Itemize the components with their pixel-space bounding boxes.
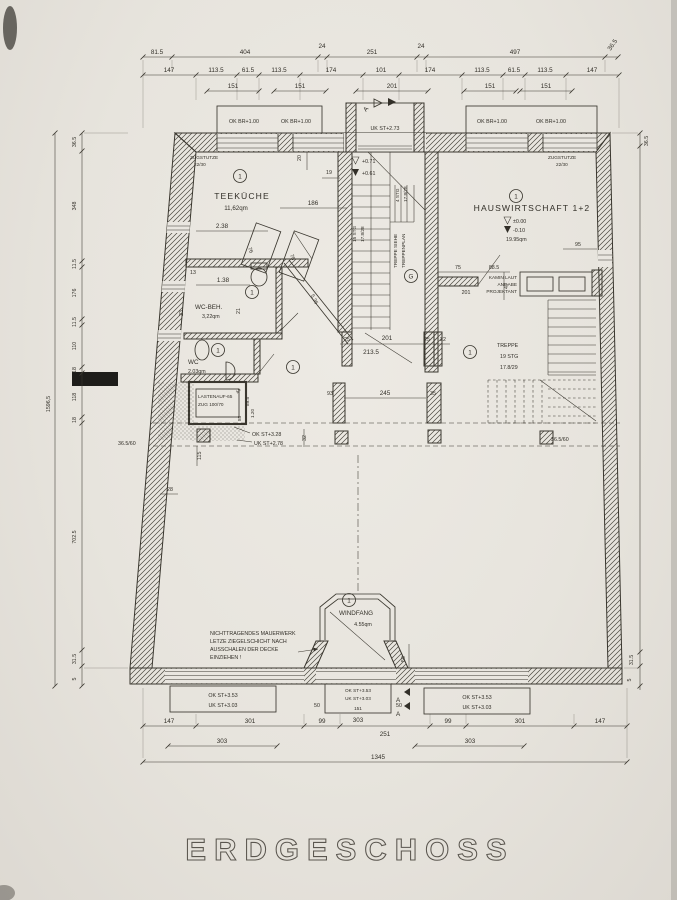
room-area-wc: 2.03qm xyxy=(188,369,206,375)
dim-label: 19 xyxy=(326,170,332,176)
flight2-rise: 17.8/28 xyxy=(403,186,408,202)
dim-label: 21 xyxy=(236,308,242,314)
room-name-teekueche: TEEKÜCHE xyxy=(214,191,270,201)
level-mark-icon xyxy=(352,169,359,176)
flight1-steps: 15 STG xyxy=(352,225,357,242)
stair-note-2: TREPPENPLAN xyxy=(401,234,406,268)
room-tag: 1 xyxy=(216,348,220,355)
column xyxy=(197,429,210,442)
stair-tag: G xyxy=(409,274,414,281)
dim-label: 186 xyxy=(308,200,319,207)
south-openings xyxy=(165,669,528,684)
room-area-teekueche: 11,62qm xyxy=(224,205,248,212)
dim-label: 28 xyxy=(167,487,173,493)
kamin: KAMIN LAUT ANGABE PROJEKTANT xyxy=(486,272,592,296)
dim-label: 174 xyxy=(425,67,436,74)
dim-label: 151 xyxy=(295,83,306,90)
scan-edge-shadow xyxy=(671,0,677,900)
wall-spec: 36.5/60 xyxy=(551,437,569,443)
dim-label: 115 xyxy=(197,452,203,460)
dim-label: 303 xyxy=(353,717,364,724)
dim-label: 95 xyxy=(575,242,581,248)
dim-label: 61.5 xyxy=(508,67,521,74)
dim-label: 151 xyxy=(541,83,552,90)
sill-label: OK BR+1.00 xyxy=(229,119,259,125)
dim-label: 303 xyxy=(217,738,228,745)
sill-boxes: OK BR+1.00 OK BR+1.00 OK BR+1.00 OK BR+1… xyxy=(217,106,597,133)
dim-label: 23 xyxy=(179,310,185,316)
room-name-hauswirtschaft: HAUSWIRTSCHAFT 1+2 xyxy=(474,203,591,213)
dim-label: 13 xyxy=(190,270,196,276)
dim-label: 147 xyxy=(595,718,606,725)
wc-south-wall xyxy=(181,374,258,382)
dim-label: 201 xyxy=(462,290,471,296)
dim-label: 1596,5 xyxy=(46,396,52,412)
interior-dimensions: 20 19 186 2.38 76 78 13 1.38 23 21 5.36 … xyxy=(160,152,597,668)
dim-label: 31.5 xyxy=(629,655,635,665)
entry-porch: UK ST+2.73 A xyxy=(344,98,426,152)
stair-hall: +0.71 +0.61 15 STG 17.8/28 4 STG 17.8/28… xyxy=(352,152,425,330)
dim-label: 85 xyxy=(237,415,242,421)
level-label: OK ST+3.53 xyxy=(462,695,491,701)
dim-label: 18 xyxy=(72,417,78,423)
exterior-walls xyxy=(130,133,622,684)
note-line: LETZE ZIEGELSCHICHT NACH xyxy=(210,639,287,645)
dim-label: 151 xyxy=(354,706,362,711)
dim-label: 702.5 xyxy=(72,530,78,543)
dim-label: 11.5 xyxy=(72,259,78,269)
room-name-wcbeh: WC-BEH. xyxy=(195,304,223,311)
room-name-wc: WC xyxy=(188,359,199,366)
dim-label: 35 xyxy=(430,391,436,397)
dim-label: 36.5 xyxy=(644,136,650,146)
hall-level-lower: +0.61 xyxy=(362,171,375,177)
dim-label: 36.5 xyxy=(606,38,619,52)
level-label: UK ST+3.03 xyxy=(345,696,371,701)
room-area-hauswirtschaft: 19.95qm xyxy=(506,237,527,243)
scan-smudge xyxy=(0,885,15,900)
dim-label: 99 xyxy=(318,718,326,725)
floorplan-svg: OK BR+1.00 OK BR+1.00 OK BR+1.00 OK BR+1… xyxy=(0,0,677,900)
zugstuetze-note: 22/30 xyxy=(194,162,206,167)
column xyxy=(428,430,441,443)
zugstuetze-note: ZUGSTUTZE xyxy=(548,155,576,160)
column xyxy=(335,431,348,444)
level-label: UK ST+3.03 xyxy=(208,703,237,709)
dim-label: 303 xyxy=(465,738,476,745)
note-line: NICHTTRAGENDES MAUERWERK xyxy=(210,631,296,637)
dim-label: 32 xyxy=(302,435,308,441)
dim-label: 18 xyxy=(72,367,78,373)
wcbeh-south-wall xyxy=(184,333,282,339)
dim-label: 93 xyxy=(327,391,333,397)
dim-label: 1.20 xyxy=(250,408,255,418)
top-dimensions: 81.5 404 24 251 24 497 36.5 147 113.5 61… xyxy=(141,38,622,128)
dim-label: 118 xyxy=(72,393,78,401)
dim-label: 11.5 xyxy=(72,317,78,327)
stair-edges xyxy=(371,152,390,330)
dim-label: 101 xyxy=(376,67,387,74)
section-letter: A xyxy=(396,711,401,718)
dim-label: 5 xyxy=(627,678,633,681)
dim-label: 113.5 xyxy=(537,67,553,74)
dim-label: 301 xyxy=(515,718,526,725)
room-tag: 1 xyxy=(250,290,254,297)
room-tag: 1 xyxy=(347,598,351,605)
dim-label: 251 xyxy=(367,49,378,56)
dim-label: 201 xyxy=(382,335,393,342)
scanned-floor-plan-page: OK BR+1.00 OK BR+1.00 OK BR+1.00 OK BR+1… xyxy=(0,0,677,900)
dim-label: 99 xyxy=(444,718,452,725)
dim-label: 1.38 xyxy=(217,277,230,284)
dim-label: 176 xyxy=(72,289,78,298)
elevator-label-1: LASTENAUF-65 xyxy=(198,394,233,399)
room-tag: 1 xyxy=(514,194,518,201)
room-area-wcbeh: 3,22qm xyxy=(202,314,220,320)
sill-label: OK BR+1.00 xyxy=(536,119,566,125)
dim-label: 88.5 xyxy=(489,265,499,271)
zugstuetze-note: 22/30 xyxy=(556,162,568,167)
dim-label: 89.5 xyxy=(245,396,250,406)
section-arrow-icon xyxy=(404,702,410,710)
wc-east-wall xyxy=(254,339,260,374)
note-line: AUSSCHALEN DER DECKE xyxy=(210,647,279,653)
dim-label: 1345 xyxy=(371,754,386,761)
right-stair-label-3: 17.8/29 xyxy=(500,365,518,371)
right-stair-label-1: TREPPE xyxy=(497,343,519,349)
dim-label: 36.5 xyxy=(72,137,78,147)
zugstuetze-note: ZUGSTUTZE xyxy=(190,155,218,160)
level-label: UK ST+3.03 xyxy=(462,705,491,711)
entry-level-label: UK ST+2.73 xyxy=(370,126,399,132)
dim-label: 5 xyxy=(72,677,78,680)
kamin-note-3: PROJEKTANT xyxy=(486,289,517,294)
mid-level-uk: UK ST+2.78 xyxy=(254,441,283,447)
wall-spec: 36.5/60 xyxy=(118,441,136,447)
dim-label: 50 xyxy=(401,656,407,662)
dim-label: 151 xyxy=(228,83,239,90)
stair-note-1: TREPPE SIEHE xyxy=(393,234,398,268)
mauerwerk-note: NICHTTRAGENDES MAUERWERK LETZE ZIEGELSCH… xyxy=(210,631,318,661)
toilet-icon xyxy=(195,340,209,360)
level-mark-icon xyxy=(504,217,511,224)
sill-label: OK BR+1.00 xyxy=(281,119,311,125)
right-stair-label-2: 19 STG xyxy=(500,354,518,360)
dim-label: 245 xyxy=(380,390,391,397)
dim-label: 113.5 xyxy=(474,67,490,74)
dim-label: 24 xyxy=(417,43,425,50)
dim-label: 213.5 xyxy=(363,349,379,356)
wcbeh-east-wall xyxy=(276,267,282,333)
bottom-dimensions: OK ST+3.53 UK ST+3.03 OK ST+3.53 UK ST+3… xyxy=(141,684,630,765)
wall-reference-marker xyxy=(72,372,118,386)
level-mark-icon xyxy=(504,226,511,233)
upper-flight-treads xyxy=(390,185,414,222)
dim-label: 20 xyxy=(297,155,303,161)
scan-smudge xyxy=(3,6,17,50)
dim-label: 75 xyxy=(455,265,461,271)
dim-label: 61.5 xyxy=(242,67,255,74)
stipple-zone xyxy=(158,382,194,440)
dim-label: 251 xyxy=(380,731,391,738)
room-name-windfang: WINDFANG xyxy=(339,610,373,617)
hall-level-upper: +0.71 xyxy=(362,159,375,165)
sill-label: OK BR+1.00 xyxy=(477,119,507,125)
dim-label: 76 xyxy=(246,247,254,255)
dim-label: 25 xyxy=(424,337,430,343)
section-letter: A xyxy=(362,105,371,113)
room-tag: 1 xyxy=(291,365,295,372)
room-tag: 1 xyxy=(238,174,242,181)
left-dimensions: 36.5 348 11.5 176 11.5 110 18 118 18 702… xyxy=(46,131,128,689)
dim-label: 497 xyxy=(510,49,521,56)
dim-label: 151 xyxy=(485,83,496,90)
kamin-note-1: KAMIN LAUT xyxy=(489,275,517,280)
east-wall xyxy=(596,133,622,668)
flight1-rise: 17.8/28 xyxy=(360,226,365,242)
dim-label: 404 xyxy=(240,49,251,56)
hw-level-ok: ±0.00 xyxy=(513,219,526,225)
east-window xyxy=(598,250,612,267)
dim-label: 31.5 xyxy=(72,654,78,664)
dim-label: 25 xyxy=(344,337,350,343)
lobby-pier xyxy=(427,383,441,423)
dim-label: 81.5 xyxy=(151,49,164,56)
dim-label: 2.38 xyxy=(216,223,229,230)
mid-level-ok: OK ST+3.28 xyxy=(252,432,281,438)
dim-label: 147 xyxy=(164,67,175,74)
hauswirtschaft-stub-wall xyxy=(438,277,478,286)
level-label: OK ST+3.53 xyxy=(208,693,237,699)
elevator-label-2: ZUG 100/70 xyxy=(198,402,224,407)
dim-label: 22 xyxy=(440,337,446,343)
dim-label: 348 xyxy=(72,202,78,211)
windfang xyxy=(304,455,408,668)
flight2-steps: 4 STG xyxy=(395,188,400,202)
room-area-windfang: 4.55qm xyxy=(354,622,372,628)
dim-label: 201 xyxy=(387,83,398,90)
page-title: ERDGESCHOSS xyxy=(185,832,514,867)
note-line: EINZIEHEN ! xyxy=(210,655,241,661)
level-label: OK ST+3.53 xyxy=(345,688,371,693)
dim-label: 24 xyxy=(318,43,326,50)
dim-label: 301 xyxy=(245,718,256,725)
dim-label: 147 xyxy=(164,718,175,725)
dim-label: 174 xyxy=(326,67,337,74)
dim-label: 147 xyxy=(587,67,598,74)
section-arrow-icon xyxy=(388,98,396,106)
room-tag: 1 xyxy=(468,350,472,357)
hall-west-wall xyxy=(338,152,352,332)
dim-label: 113.5 xyxy=(208,67,224,74)
dim-label: 110 xyxy=(72,342,78,350)
right-stair: TREPPE 19 STG 17.8/29 xyxy=(488,300,596,423)
dim-label: 50 xyxy=(314,703,320,709)
hw-level-uk: -0.10 xyxy=(513,228,525,234)
dim-label: 44 xyxy=(235,387,242,394)
dim-label: 113.5 xyxy=(271,67,287,74)
kamin-pier xyxy=(592,270,602,296)
level-mark-icon xyxy=(352,157,359,164)
dim-label: 47 xyxy=(504,283,510,289)
section-arrow-icon xyxy=(404,688,410,696)
lobby-pier xyxy=(333,383,345,423)
